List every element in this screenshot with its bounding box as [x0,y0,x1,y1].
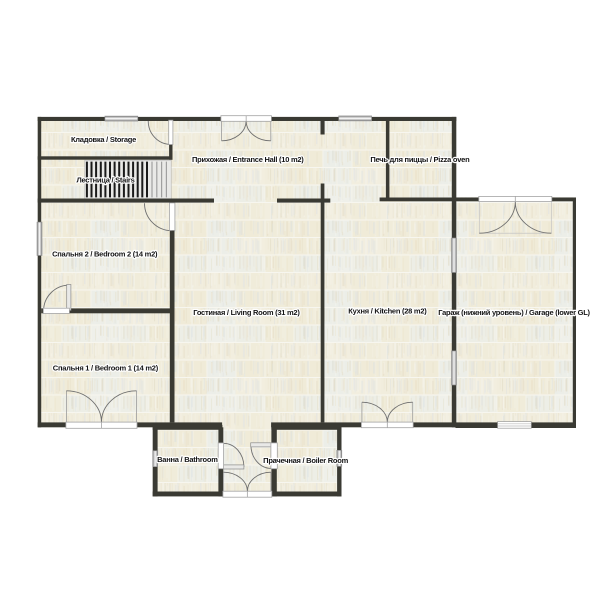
svg-text:Печь для пиццы / Pizza oven: Печь для пиццы / Pizza oven [370,155,470,164]
svg-text:Спальня 2 / Bedroom 2 (14 m2): Спальня 2 / Bedroom 2 (14 m2) [52,250,158,259]
svg-text:Кладовка / Storage: Кладовка / Storage [71,135,136,144]
svg-text:Лестница / Stairs: Лестница / Stairs [76,175,134,184]
svg-text:Прачечная / Boiler Room: Прачечная / Boiler Room [263,456,348,465]
svg-text:Гараж (нижний уровень) / Gara: Гараж (нижний уровень) / Garage (lower G… [438,308,590,317]
svg-text:Ванна / Bathroom: Ванна / Bathroom [157,455,218,464]
svg-text:Гостиная / Living Room (31 m2): Гостиная / Living Room (31 m2) [193,308,300,317]
svg-text:Спальня 1 / Bedroom 1 (14 m2): Спальня 1 / Bedroom 1 (14 m2) [53,363,159,372]
svg-text:Кухня / Kitchen (28 m2): Кухня / Kitchen (28 m2) [348,307,427,316]
svg-text:Прихожая / Entrance Hall (10 m: Прихожая / Entrance Hall (10 m2) [192,155,304,164]
